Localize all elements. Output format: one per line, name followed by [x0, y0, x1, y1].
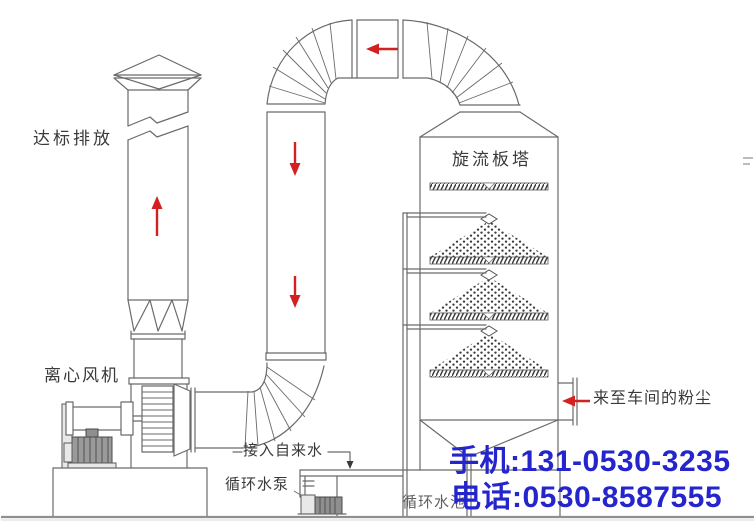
- discharge-label: 达标排放: [33, 130, 113, 149]
- stack-break: [128, 112, 188, 140]
- flow-arrow-left: [366, 44, 398, 55]
- dust-inlet-label: 来至车间的粉尘: [593, 390, 712, 408]
- swirl-plate: [430, 257, 548, 264]
- right-elbow: [403, 20, 519, 105]
- swirl-plate: [430, 313, 548, 320]
- flow-arrow-down-2: [290, 276, 301, 308]
- contact-phone: 电话:0530-8587555: [451, 472, 722, 516]
- spray-nozzle: [481, 326, 497, 336]
- tower-label: 旋流板塔: [452, 151, 532, 170]
- diagram-canvas: 达标排放 离心风机 旋流板塔 接入自来水 循环水泵 循环水池 来至车间的粉尘 手…: [0, 0, 756, 529]
- pump-label: 循环水泵: [225, 477, 289, 494]
- ground-line: [1, 517, 754, 520]
- outlet-elbow-duct: [195, 353, 326, 448]
- left-elbow: [267, 20, 357, 104]
- spray-nozzle: [481, 214, 497, 224]
- fan-base: [53, 468, 207, 516]
- spray-cone: [430, 333, 548, 370]
- tap-water-label: 接入自来水: [243, 443, 323, 460]
- flow-arrow-inlet: [562, 396, 590, 407]
- flow-arrow-up: [152, 196, 163, 236]
- swirl-plate: [430, 183, 548, 190]
- swirl-plate: [430, 370, 548, 377]
- rain-cap: [114, 55, 201, 90]
- chimney-stack: [128, 90, 188, 300]
- stack-transition: [128, 300, 189, 384]
- fan-label: 离心风机: [44, 367, 120, 386]
- spray-cone: [430, 221, 548, 257]
- spray-cone: [430, 277, 548, 313]
- flow-arrow-down-1: [290, 142, 301, 176]
- tower-top-transition: [420, 105, 558, 137]
- edge-mark: [743, 158, 753, 164]
- centrifugal-fan-unit: [131, 384, 195, 468]
- downcomer-duct: [267, 104, 325, 353]
- circulating-pump: [294, 481, 346, 514]
- spray-nozzle: [481, 270, 497, 280]
